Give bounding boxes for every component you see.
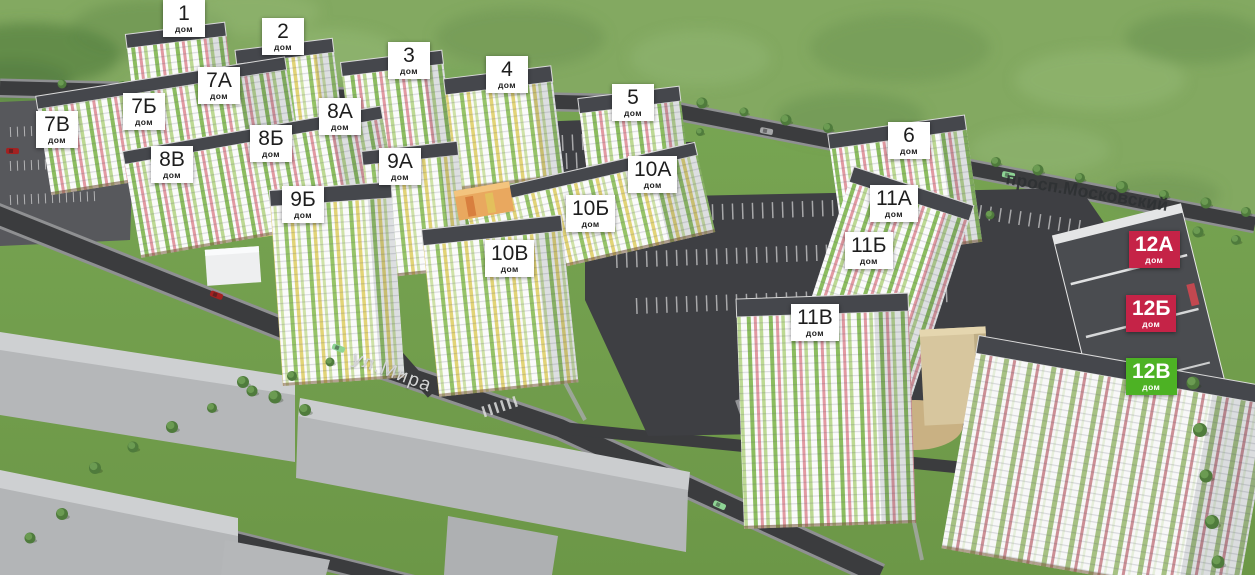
street-label-ul-mira: ул.Мира <box>349 348 435 398</box>
building-number: 11А <box>876 187 912 210</box>
building-labels-layer: просп.Московский ул.Мира 1дом2дом3дом4до… <box>0 0 1255 575</box>
building-number: 10В <box>491 242 528 265</box>
residential-complex-masterplan: просп.Московский ул.Мира 1дом2дом3дом4до… <box>0 0 1255 575</box>
building-label-6[interactable]: 6дом <box>888 122 930 159</box>
building-label-7В[interactable]: 7Вдом <box>36 111 78 148</box>
building-label-12В[interactable]: 12Вдом <box>1126 358 1177 395</box>
building-number: 11В <box>797 306 833 329</box>
building-unit-label: дом <box>492 81 522 90</box>
building-number: 11Б <box>851 234 887 257</box>
building-unit-label: дом <box>491 265 528 274</box>
building-label-9А[interactable]: 9Адом <box>379 148 421 185</box>
building-unit-label: дом <box>572 220 609 229</box>
building-number: 12Б <box>1132 297 1170 320</box>
building-unit-label: дом <box>1132 383 1171 392</box>
building-label-10В[interactable]: 10Вдом <box>485 240 534 277</box>
building-label-8В[interactable]: 8Вдом <box>151 146 193 183</box>
building-number: 6 <box>894 124 924 147</box>
building-unit-label: дом <box>851 257 887 266</box>
building-number: 10А <box>634 158 671 181</box>
building-label-7А[interactable]: 7Адом <box>198 67 240 104</box>
building-number: 3 <box>394 44 424 67</box>
building-label-7Б[interactable]: 7Бдом <box>123 93 165 130</box>
building-unit-label: дом <box>256 150 286 159</box>
building-unit-label: дом <box>288 211 318 220</box>
building-number: 9А <box>385 150 415 173</box>
building-label-10А[interactable]: 10Адом <box>628 156 677 193</box>
building-number: 8А <box>325 100 355 123</box>
building-unit-label: дом <box>325 123 355 132</box>
building-number: 7Б <box>129 95 159 118</box>
building-unit-label: дом <box>157 171 187 180</box>
building-label-10Б[interactable]: 10Бдом <box>566 195 615 232</box>
building-unit-label: дом <box>169 25 199 34</box>
building-number: 10Б <box>572 197 609 220</box>
building-label-1[interactable]: 1дом <box>163 0 205 37</box>
building-label-9Б[interactable]: 9Бдом <box>282 186 324 223</box>
building-unit-label: дом <box>394 67 424 76</box>
building-number: 8В <box>157 148 187 171</box>
building-unit-label: дом <box>797 329 833 338</box>
building-unit-label: дом <box>1135 256 1174 265</box>
building-label-11В[interactable]: 11Вдом <box>791 304 839 341</box>
building-unit-label: дом <box>385 173 415 182</box>
building-label-11А[interactable]: 11Адом <box>870 185 918 222</box>
building-unit-label: дом <box>42 136 72 145</box>
street-label-prosp-moskovskiy: просп.Московский <box>1004 168 1170 216</box>
building-label-12Б[interactable]: 12Бдом <box>1126 295 1176 332</box>
building-label-12А[interactable]: 12Адом <box>1129 231 1180 268</box>
building-label-2[interactable]: 2дом <box>262 18 304 55</box>
building-number: 4 <box>492 58 522 81</box>
building-number: 7В <box>42 113 72 136</box>
building-label-4[interactable]: 4дом <box>486 56 528 93</box>
building-label-3[interactable]: 3дом <box>388 42 430 79</box>
building-label-8Б[interactable]: 8Бдом <box>250 125 292 162</box>
building-number: 7А <box>204 69 234 92</box>
building-number: 8Б <box>256 127 286 150</box>
building-unit-label: дом <box>129 118 159 127</box>
building-unit-label: дом <box>894 147 924 156</box>
building-number: 5 <box>618 86 648 109</box>
building-number: 12А <box>1135 233 1174 256</box>
building-number: 9Б <box>288 188 318 211</box>
building-unit-label: дом <box>1132 320 1170 329</box>
building-unit-label: дом <box>618 109 648 118</box>
building-number: 2 <box>268 20 298 43</box>
building-number: 1 <box>169 2 199 25</box>
building-unit-label: дом <box>634 181 671 190</box>
building-unit-label: дом <box>204 92 234 101</box>
building-unit-label: дом <box>876 210 912 219</box>
building-unit-label: дом <box>268 43 298 52</box>
building-number: 12В <box>1132 360 1171 383</box>
building-label-8А[interactable]: 8Адом <box>319 98 361 135</box>
building-label-11Б[interactable]: 11Бдом <box>845 232 893 269</box>
building-label-5[interactable]: 5дом <box>612 84 654 121</box>
